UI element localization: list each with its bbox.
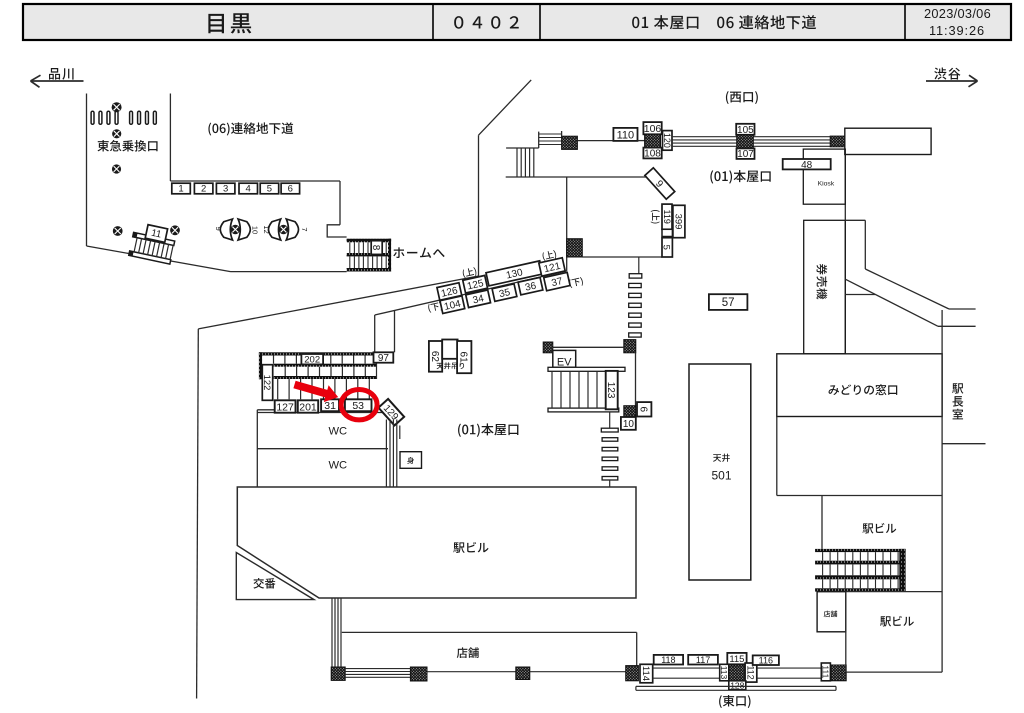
svg-text:1: 1 <box>178 183 183 194</box>
svg-text:117: 117 <box>696 655 710 665</box>
svg-text:10: 10 <box>250 226 259 234</box>
svg-text:115: 115 <box>729 654 744 665</box>
svg-text:48: 48 <box>801 160 813 171</box>
svg-text:6: 6 <box>288 183 293 194</box>
svg-text:123: 123 <box>605 382 616 399</box>
svg-text:116: 116 <box>759 655 773 665</box>
svg-text:202: 202 <box>304 355 320 366</box>
svg-text:62: 62 <box>429 351 440 363</box>
svg-text:399: 399 <box>673 214 684 230</box>
svg-text:5: 5 <box>661 245 672 250</box>
svg-text:9: 9 <box>214 227 223 231</box>
svg-text:128: 128 <box>730 680 744 690</box>
svg-text:97: 97 <box>378 353 390 364</box>
svg-text:12: 12 <box>262 225 271 233</box>
svg-text:8: 8 <box>370 245 381 251</box>
svg-text:2: 2 <box>201 183 206 194</box>
svg-text:106: 106 <box>644 123 662 135</box>
svg-text:EV: EV <box>557 356 572 368</box>
svg-text:127: 127 <box>276 401 294 413</box>
svg-text:61: 61 <box>458 352 469 364</box>
svg-text:6: 6 <box>638 407 649 413</box>
svg-text:53: 53 <box>352 400 364 412</box>
svg-text:501: 501 <box>711 469 731 483</box>
svg-text:4: 4 <box>246 183 251 194</box>
svg-text:108: 108 <box>644 149 661 160</box>
svg-text:120: 120 <box>662 133 672 148</box>
svg-text:WC: WC <box>328 460 347 472</box>
svg-text:110: 110 <box>617 129 635 141</box>
svg-text:107: 107 <box>737 149 754 160</box>
svg-text:113: 113 <box>719 666 729 680</box>
svg-text:7: 7 <box>300 227 309 231</box>
svg-text:122: 122 <box>261 375 272 391</box>
svg-text:2023/03/06: 2023/03/06 <box>924 6 991 21</box>
svg-text:201: 201 <box>299 401 317 413</box>
svg-text:105: 105 <box>737 125 754 136</box>
svg-text:10: 10 <box>623 419 635 430</box>
svg-text:5: 5 <box>267 183 272 194</box>
svg-text:Kiosk: Kiosk <box>818 181 835 188</box>
svg-text:57: 57 <box>722 297 735 309</box>
svg-text:119: 119 <box>662 210 672 224</box>
svg-text:111: 111 <box>821 665 831 678</box>
svg-text:WC: WC <box>328 426 347 438</box>
svg-text:112: 112 <box>746 665 756 679</box>
svg-text:31: 31 <box>324 400 336 412</box>
svg-text:118: 118 <box>661 655 675 665</box>
svg-text:114: 114 <box>640 666 651 681</box>
svg-text:11:39:26: 11:39:26 <box>929 23 985 38</box>
svg-text:104: 104 <box>443 299 462 313</box>
svg-text:3: 3 <box>223 183 228 194</box>
